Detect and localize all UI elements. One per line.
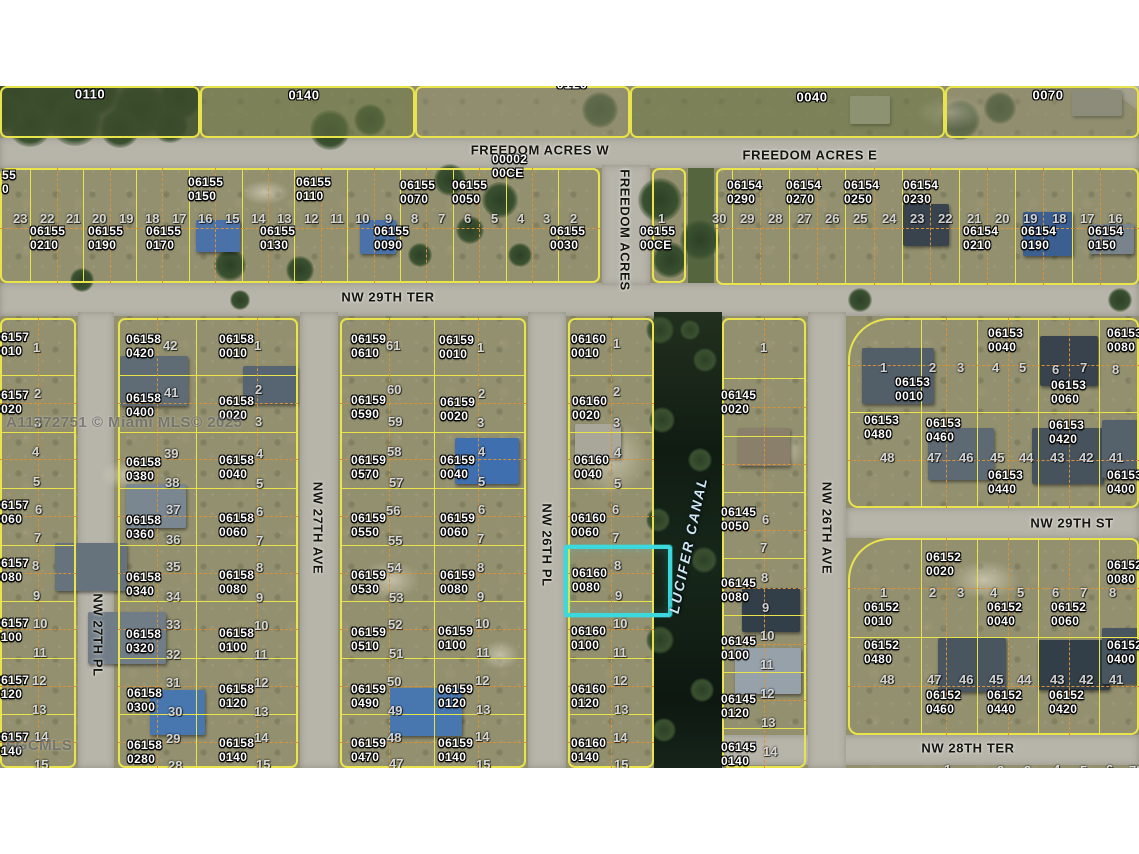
lot-number: 13 (254, 704, 268, 719)
lot-number: 15 (225, 211, 239, 226)
parcel-id-line1: 06158 (126, 513, 161, 527)
lot-number: 28 (768, 211, 782, 226)
lot-number: 10 (33, 616, 47, 631)
parcel-line (347, 168, 348, 283)
parcel-id-line2: 0080 (0, 570, 29, 584)
road (0, 283, 1139, 316)
lot-number: 22 (40, 211, 54, 226)
street-label: FREEDOM ACRES W (471, 143, 610, 158)
watermark-mls-corner: FGCMLS (6, 737, 72, 754)
parcel-id-line1: 06154 (786, 178, 821, 192)
lot-number: 13 (476, 702, 490, 717)
lot-number: 4 (517, 211, 524, 226)
parcel-id-line1: 06145 (721, 692, 756, 706)
parcel-id-line1: 06155 (296, 175, 331, 189)
lot-number: 8 (256, 560, 263, 575)
lot-number: 42 (1079, 450, 1093, 465)
parcel-id-label: 061530010 (895, 375, 930, 403)
lot-number: 6 (1052, 585, 1059, 600)
parcel-id-line2: 0270 (786, 192, 821, 206)
lot-number: 52 (388, 617, 402, 632)
parcel-id-label: 061550050 (452, 178, 487, 206)
parcel-id-label: 061450050 (721, 505, 756, 533)
parcel-id-line2: 0380 (126, 469, 161, 483)
parcel-id-label: 061580040 (219, 453, 254, 481)
lot-number: 42 (163, 338, 177, 353)
parcel-id-label: 061550090 (374, 224, 409, 252)
lot-number: 5 (33, 474, 40, 489)
parcel-id-label: 061580320 (126, 627, 161, 655)
parcel-id-line2: 0130 (260, 238, 295, 252)
parcel-id-line1: 06155 (260, 224, 295, 238)
lot-number: 45 (989, 672, 1003, 687)
lot-number: 23 (910, 211, 924, 226)
parcel-id-line1: 06152 (1107, 638, 1139, 652)
lot-number: 4 (478, 444, 485, 459)
tree (652, 718, 676, 742)
parcel-id-line2: 0140 (438, 750, 473, 764)
parcel-id-line2: 0100 (571, 638, 606, 652)
lot-number: 49 (388, 703, 402, 718)
lot-number: 29 (166, 731, 180, 746)
parcel-id-label: 061520010 (864, 600, 899, 628)
parcel-id-label: 061520060 (1051, 600, 1086, 628)
lot-number: 54 (387, 560, 401, 575)
parcel-id-line2: 0060 (219, 525, 254, 539)
lot-number: 1 (613, 336, 620, 351)
parcel-id-line2: 0090 (374, 238, 409, 252)
parcel-line (118, 432, 298, 433)
parcel-id-label: 061580420 (126, 332, 161, 360)
lot-number: 11 (33, 645, 47, 660)
lot-number: 9 (762, 600, 769, 615)
lot-number: 1 (33, 340, 40, 355)
parcel-id-label: 061450140 (721, 740, 756, 768)
lot-number: 20 (995, 211, 1009, 226)
lot-number: 6 (762, 512, 769, 527)
parcel-id-line2: 0050 (721, 519, 756, 533)
parcel-id-label: 061520460 (926, 688, 961, 716)
lot-number: 20 (92, 211, 106, 226)
parcel-id-line2: 0140 (571, 750, 606, 764)
parcel-line (722, 378, 806, 379)
lot-number: 55 (388, 533, 402, 548)
parcel-id-label: 0140 (289, 88, 320, 103)
lot-number: 14 (254, 730, 268, 745)
parcel-id-line2: 0040 (574, 467, 609, 481)
parcel-id-label: 061580010 (219, 332, 254, 360)
parcel-id-label: 061580120 (219, 682, 254, 710)
lot-number: 41 (164, 385, 178, 400)
parcel-id-line1: 06157 (0, 556, 29, 570)
street-label: NW 27TH AVE (311, 482, 326, 575)
parcel-id-label: 061550130 (260, 224, 295, 252)
parcel-id-label: 061600140 (571, 736, 606, 764)
parcel-id-label: 0040 (797, 90, 828, 105)
parcel-id-line1: 06158 (219, 511, 254, 525)
tree (1108, 288, 1132, 312)
parcel-id-label: 061520420 (1049, 688, 1084, 716)
parcel-line (722, 464, 806, 465)
lot-number: 13 (32, 702, 46, 717)
lot-number: 9 (615, 588, 622, 603)
lot-number: 3 (613, 415, 620, 430)
lot-number: 38 (165, 475, 179, 490)
parcel-id-line2: 0300 (127, 700, 162, 714)
parcel-id-line1: 06154 (727, 178, 762, 192)
parcel-id-label: 061600010 (571, 332, 606, 360)
parcel-id-line2: 0080 (572, 580, 607, 594)
parcel-id-label: 061530060 (1051, 378, 1086, 406)
parcel-line (118, 488, 298, 489)
parcel-id-label: 061450020 (721, 388, 756, 416)
parcel-id-line2: 0320 (126, 641, 161, 655)
parcel-id-line1: 06155 (400, 178, 435, 192)
parcel-id-line1: 06153 (1107, 326, 1139, 340)
parcel-id-line1: 06159 (438, 682, 473, 696)
parcel-id-label: 061530040 (988, 326, 1023, 354)
parcel-line (340, 375, 526, 376)
parcel-id-label: 061450080 (721, 576, 756, 604)
parcel-id-line1: 06155 (88, 224, 123, 238)
parcel-id-line1: 06159 (440, 453, 475, 467)
parcel-id-label: 061580140 (219, 736, 254, 764)
parcel-id-line1: 06160 (571, 332, 606, 346)
parcel-id-line1: 06158 (219, 568, 254, 582)
lot-number: 23 (13, 211, 27, 226)
parcel-id-line2: 0280 (127, 752, 162, 766)
lot-number: 48 (387, 730, 401, 745)
parcel-line (340, 432, 526, 433)
parcel-id-line2: 0590 (351, 407, 386, 421)
lot-number: 2 (929, 585, 936, 600)
parcel-id-line2: 0150 (188, 189, 223, 203)
lot-number: 6 (464, 211, 471, 226)
lot-number: 58 (387, 444, 401, 459)
parcel-id-line1: 06153 (1049, 418, 1084, 432)
parcel-id-label: 061590510 (351, 625, 386, 653)
parcel-id-label: 061570060 (0, 498, 29, 526)
parcel-id-label: 061570010 (0, 330, 29, 358)
parcel-id-line2: 0210 (30, 238, 65, 252)
parcel-id-line2: 0040 (440, 467, 475, 481)
street-label: FREEDOM ACRES (618, 169, 633, 290)
lot-number: 7 (256, 533, 263, 548)
parcel-id-label: 061590490 (351, 682, 386, 710)
lot-number: 11 (476, 645, 490, 660)
parcel-id-line2: 0010 (571, 346, 606, 360)
lot-number: 3 (543, 211, 550, 226)
parcel-id-label: 061580080 (219, 568, 254, 596)
tree (848, 288, 872, 312)
parcel-line (532, 168, 533, 283)
parcel-id-label: 061580340 (126, 570, 161, 598)
lot-number: 3 (255, 414, 262, 429)
parcel-id-line2: 0040 (219, 467, 254, 481)
lot-number: 6 (478, 502, 485, 517)
parcel-id-line1: 06158 (126, 627, 161, 641)
parcel-id-label: 061530460 (926, 416, 961, 444)
parcel-id-line1: 06154 (963, 224, 998, 238)
lot-number: 44 (1017, 672, 1031, 687)
lot-number: 9 (477, 589, 484, 604)
lot-number: 14 (613, 730, 627, 745)
lot-number: 61 (386, 338, 400, 353)
parcel-id-line1: 06160 (571, 624, 606, 638)
parcel-id-label: 061570120 (0, 673, 29, 701)
lot-number: 48 (880, 672, 894, 687)
parcel-id-line2: 0420 (126, 346, 161, 360)
parcel-id-label: 061580380 (126, 455, 161, 483)
lot-number: 14 (475, 729, 489, 744)
watermark-mls-id: A11772751 © Miami MLS© 2025 (6, 414, 243, 431)
lot-number: 5 (1019, 360, 1026, 375)
parcel-id-line1: 06153 (988, 468, 1023, 482)
lot-number: 47 (927, 450, 941, 465)
parcel-id-line1: 06157 (0, 673, 29, 687)
parcel-id-label: 061550190 (88, 224, 123, 252)
parcel-id-line1: 06153 (926, 416, 961, 430)
parcel-id-label: 061540190 (1021, 224, 1056, 252)
lot-number: 25 (853, 211, 867, 226)
lot-number: 8 (1112, 362, 1119, 377)
parcel-id-line1: 06157 (0, 616, 29, 630)
parcel-line (722, 558, 806, 559)
parcel-id-line1: 06152 (987, 600, 1022, 614)
parcel-id-label: 061590120 (438, 682, 473, 710)
parcel-id-line2: 0020 (721, 402, 756, 416)
parcel-line (118, 658, 298, 659)
parcel-id-line2: 0190 (88, 238, 123, 252)
parcel-id-line1: 06152 (864, 600, 899, 614)
parcel-id-line2: 0400 (1107, 652, 1139, 666)
parcel-id-line1: 06152 (987, 688, 1022, 702)
parcel-id-line1: 06159 (438, 624, 473, 638)
parcel-id-line2: 0060 (1051, 392, 1086, 406)
parcel-id-line1: 06152 (926, 550, 961, 564)
parcel-line (118, 601, 298, 602)
parcel-id-line1: 06159 (440, 511, 475, 525)
lot-number: 1 (880, 585, 887, 600)
parcel-id-label: 061540210 (963, 224, 998, 252)
lot-number: 8 (614, 558, 621, 573)
parcel-id-label: 061540150 (1088, 224, 1123, 252)
street-label: NW 29TH TER (341, 290, 434, 305)
parcel-block (415, 86, 630, 138)
parcel-line (977, 318, 978, 508)
parcel-id-line1: 06159 (438, 736, 473, 750)
parcel-id-label: 061590590 (351, 393, 386, 421)
parcel-id-line1: 06159 (351, 332, 386, 346)
lot-number: 46 (959, 672, 973, 687)
parcel-id-line1: 06145 (721, 576, 756, 590)
parcel-block (630, 86, 945, 138)
parcel-id-line2: 0070 (400, 192, 435, 206)
lot-number: 34 (166, 589, 180, 604)
tree (690, 678, 714, 702)
parcel-id-line2: 0030 (550, 238, 585, 252)
parcel-line (506, 168, 507, 283)
parcel-id-line2: 0060 (1051, 614, 1086, 628)
parcel-id-label: 061600120 (571, 682, 606, 710)
parcel-id-line2: 0080 (219, 582, 254, 596)
parcel-id-line1: 06155 (374, 224, 409, 238)
parcel-line (340, 714, 526, 715)
lot-number: 2 (570, 211, 577, 226)
lot-number: 6 (35, 502, 42, 517)
page-margin-bottom (0, 768, 1139, 854)
parcel-id-line1: 06157 (0, 330, 29, 344)
parcel-id-line1: 06145 (721, 505, 756, 519)
parcel-id-line2: 0060 (440, 525, 475, 539)
lot-number: 16 (198, 211, 212, 226)
lot-number: 9 (256, 590, 263, 605)
parcel-id-label: 061450100 (721, 634, 756, 662)
parcel-id-label: 061590470 (351, 736, 386, 764)
parcel-id-line2: 0080 (440, 582, 475, 596)
lot-number: 59 (388, 414, 402, 429)
parcel-line (340, 545, 526, 546)
parcel-id-line1: 06159 (351, 453, 386, 467)
parcel-id-line1: 06154 (844, 178, 879, 192)
parcel-id-line1: 06153 (864, 413, 899, 427)
street-label: NW 29TH ST (1030, 516, 1113, 531)
lot-number: 8 (477, 560, 484, 575)
parcel-id-line2: 0490 (351, 696, 386, 710)
parcel-id-line1: 06160 (571, 511, 606, 525)
parcel-id-line2: 0060 (0, 512, 29, 526)
parcel-id-line1: 06145 (721, 740, 756, 754)
parcel-id-line1: 06158 (127, 738, 162, 752)
parcel-id-label: 061590530 (351, 568, 386, 596)
parcel-id-line1: 06155 (640, 224, 675, 238)
lot-number: 46 (959, 450, 973, 465)
parcel-id-label: 061520040 (987, 600, 1022, 628)
lot-number: 50 (387, 674, 401, 689)
parcel-id-label: 061530400 (1107, 468, 1139, 496)
parcel-id-line2: 0190 (1021, 238, 1056, 252)
lot-number: 4 (256, 446, 263, 461)
lot-number: 12 (613, 673, 627, 688)
parcel-id-line1: 06158 (219, 332, 254, 346)
parcel-id-label: 0070 (1033, 88, 1064, 103)
lot-number: 11 (613, 645, 627, 660)
lot-number: 13 (277, 211, 291, 226)
parcel-line (1072, 168, 1073, 285)
lot-number: 7 (1080, 585, 1087, 600)
lot-number: 12 (760, 686, 774, 701)
parcel-id-label: 061550110 (296, 175, 331, 203)
parcel-line (118, 375, 298, 376)
tree (230, 290, 250, 310)
lot-number: 16 (1108, 211, 1122, 226)
parcel-id-label: 061590100 (438, 624, 473, 652)
lot-number: 3 (477, 415, 484, 430)
parcel-id-label: 061450120 (721, 692, 756, 720)
lot-number: 12 (32, 673, 46, 688)
parcel-id-line1: 06158 (219, 736, 254, 750)
parcel-line (722, 492, 806, 493)
parcel-id-line2: 0040 (987, 614, 1022, 628)
lot-number: 7 (760, 540, 767, 555)
parcel-id-line1: 06159 (351, 625, 386, 639)
parcel-id-line2: 00CE (640, 238, 675, 252)
lot-number: 4 (614, 445, 621, 460)
lot-number: 14 (251, 211, 265, 226)
parcel-id-line1: 06159 (440, 395, 475, 409)
parcel-id-line2: 0020 (926, 564, 961, 578)
lot-number: 43 (1050, 450, 1064, 465)
parcel-id-line2: 00CE (492, 166, 527, 180)
parcel-id-label: 061570020 (0, 388, 29, 416)
parcel-id-line2: 0440 (987, 702, 1022, 716)
parcel-id-line2: 0010 (895, 389, 930, 403)
parcel-id-label: 061590080 (440, 568, 475, 596)
lot-number: 21 (967, 211, 981, 226)
lot-number: 5 (491, 211, 498, 226)
lot-number: 5 (1017, 585, 1024, 600)
parcel-id-line1: 55 (2, 168, 16, 182)
parcel-id-line1: 06155 (30, 224, 65, 238)
parcel-id-label: 061520080 (1107, 558, 1139, 586)
street-label: NW 26TH AVE (820, 482, 835, 575)
parcel-id-line2: 0 (2, 182, 16, 196)
parcel-line (1069, 318, 1070, 508)
parcel-id-line1: 06159 (440, 568, 475, 582)
parcel-id-label: 550 (2, 168, 16, 196)
parcel-id-line1: 06158 (219, 453, 254, 467)
parcel-id-label: 0110 (75, 87, 105, 102)
lot-number: 2 (929, 360, 936, 375)
parcel-id-line2: 0290 (727, 192, 762, 206)
lot-number: 10 (355, 211, 369, 226)
lot-number: 7 (612, 530, 619, 545)
parcel-line (722, 436, 806, 437)
parcel-id-line1: 06158 (219, 626, 254, 640)
lot-number: 2 (255, 382, 262, 397)
parcel-id-line1: 06158 (219, 394, 254, 408)
parcel-id-label: 061590010 (439, 333, 474, 361)
lot-number: 2 (34, 386, 41, 401)
parcel-id-line1: 06154 (1088, 224, 1123, 238)
parcel-id-line2: 0550 (351, 525, 386, 539)
lot-number: 33 (166, 617, 180, 632)
parcel-id-line2: 0120 (721, 706, 756, 720)
lot-number: 7 (34, 530, 41, 545)
lot-number: 3 (957, 585, 964, 600)
lot-number: 39 (164, 446, 178, 461)
lot-number: 48 (880, 450, 894, 465)
parcel-id-line1: 06159 (351, 568, 386, 582)
parcel-id-line1: 06158 (219, 682, 254, 696)
parcel-id-line2: 0120 (0, 687, 29, 701)
parcel-id-line1: 06145 (721, 634, 756, 648)
lot-number: 8 (1109, 585, 1116, 600)
parcel-line (921, 318, 922, 508)
lot-number: 37 (166, 502, 180, 517)
parcel-id-line1: 06160 (572, 566, 607, 580)
parcel-id-line1: 06159 (351, 682, 386, 696)
lot-number: 17 (172, 211, 186, 226)
parcel-line (242, 168, 243, 283)
lot-number: 21 (66, 211, 80, 226)
parcel-id-line2: 0230 (903, 192, 938, 206)
lot-number: 14 (763, 744, 777, 759)
lot-number: 30 (168, 704, 182, 719)
lot-number: 30 (712, 211, 726, 226)
parcel-id-label: 0615500CE (640, 224, 675, 252)
parcel-id-label: 061600080 (572, 566, 607, 594)
